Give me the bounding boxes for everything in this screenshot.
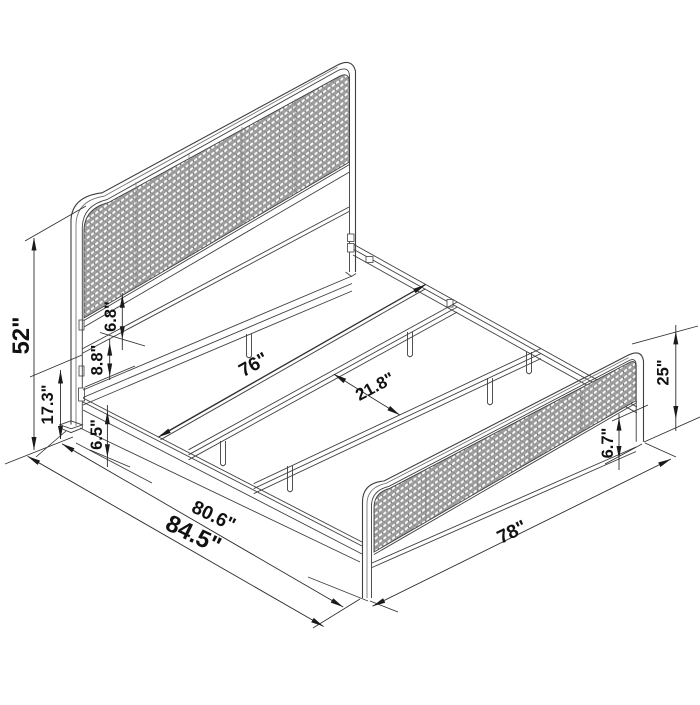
svg-text:8.8": 8.8" (89, 345, 107, 376)
svg-text:6.8": 6.8" (102, 301, 120, 332)
svg-text:52": 52" (8, 316, 35, 354)
svg-text:25": 25" (655, 359, 673, 385)
svg-text:6.5": 6.5" (88, 419, 106, 450)
svg-text:6.7": 6.7" (599, 428, 617, 459)
svg-text:17.3": 17.3" (39, 385, 57, 425)
